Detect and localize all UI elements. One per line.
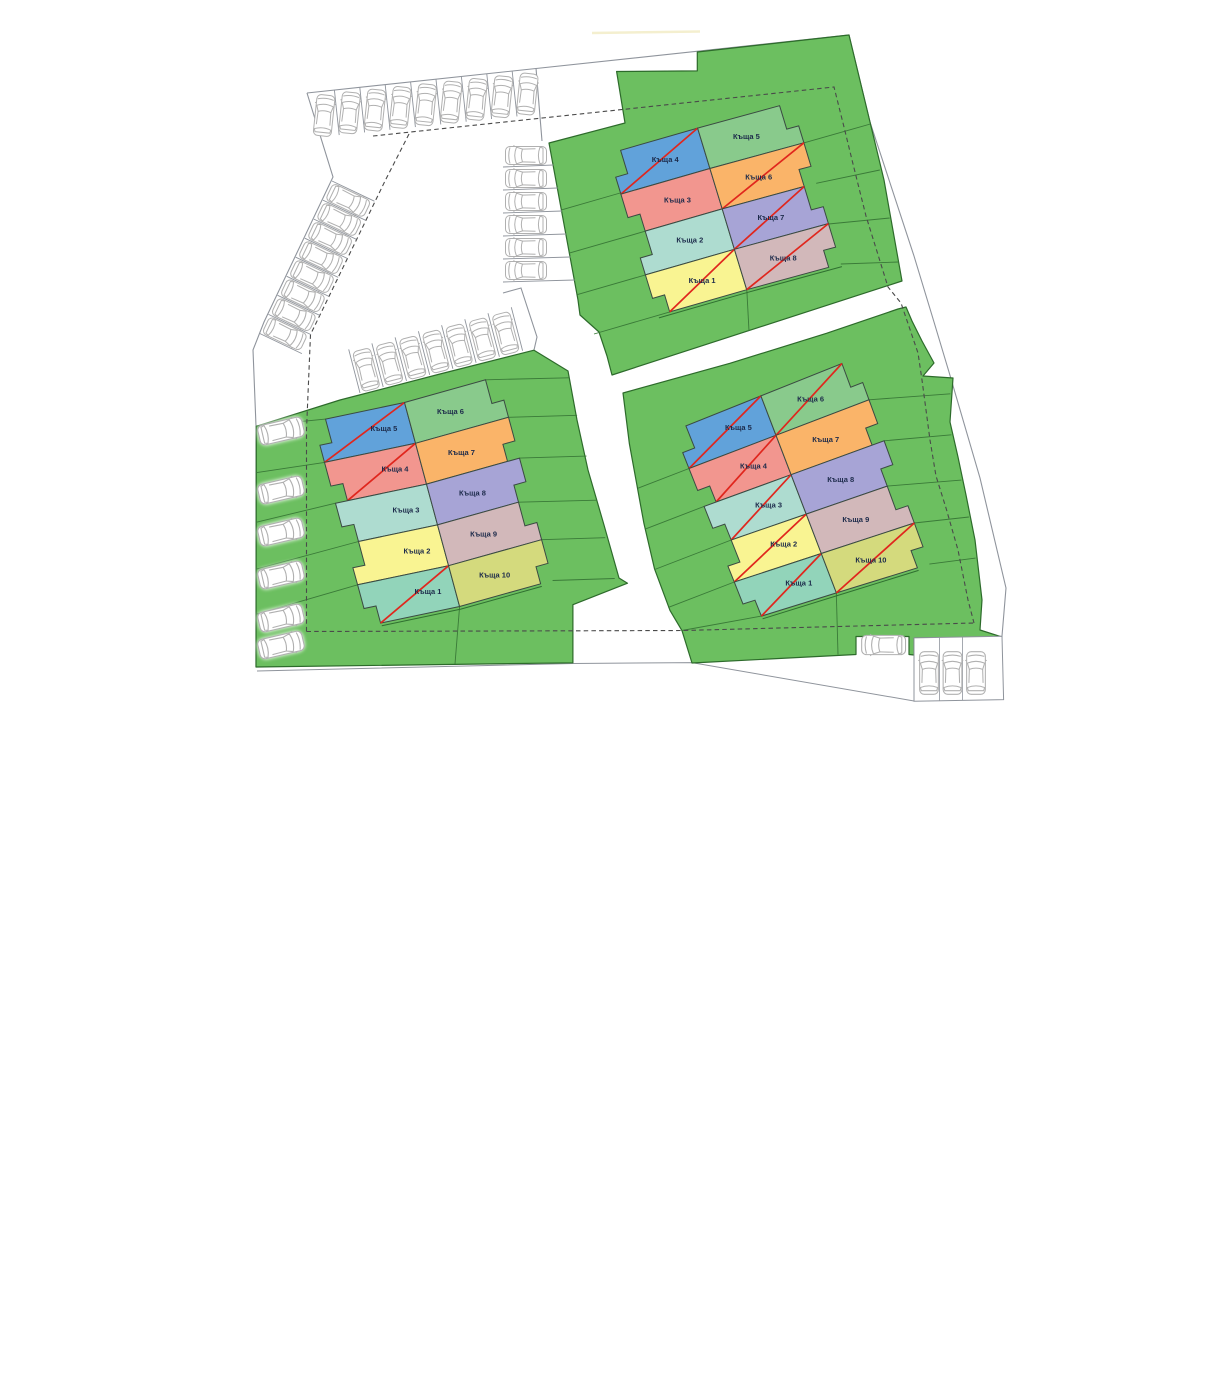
- svg-text:Къща 6: Къща 6: [797, 395, 824, 404]
- svg-text:Къща 7: Къща 7: [812, 435, 839, 444]
- svg-text:Къща 2: Къща 2: [404, 546, 431, 555]
- svg-text:Къща 1: Къща 1: [689, 276, 716, 285]
- svg-text:Къща 7: Къща 7: [757, 213, 784, 222]
- svg-text:Къща 2: Къща 2: [770, 539, 797, 548]
- svg-text:Къща 8: Къща 8: [459, 489, 486, 498]
- svg-text:Къща 5: Къща 5: [370, 424, 397, 433]
- svg-text:Къща 1: Къща 1: [785, 578, 812, 587]
- svg-text:Къща 1: Къща 1: [415, 587, 442, 596]
- svg-text:Къща 6: Къща 6: [745, 173, 772, 182]
- svg-text:Къща 4: Къща 4: [382, 465, 410, 474]
- svg-text:Къща 5: Къща 5: [725, 423, 752, 432]
- svg-text:Къща 10: Къща 10: [855, 555, 886, 564]
- svg-text:Къща 10: Къща 10: [479, 570, 510, 579]
- svg-text:Къща 6: Къща 6: [437, 407, 464, 416]
- svg-text:Къща 4: Къща 4: [740, 462, 768, 471]
- svg-text:Къща 2: Къща 2: [676, 236, 703, 245]
- svg-text:Къща 7: Къща 7: [448, 448, 475, 457]
- svg-text:Къща 8: Къща 8: [770, 253, 797, 262]
- svg-text:Къща 3: Къща 3: [664, 195, 691, 204]
- svg-text:Къща 9: Къща 9: [470, 530, 497, 539]
- svg-text:Къща 3: Къща 3: [393, 506, 420, 515]
- svg-text:Къща 5: Къща 5: [733, 132, 760, 141]
- svg-text:Къща 4: Къща 4: [652, 155, 680, 164]
- svg-text:Къща 3: Къща 3: [755, 501, 782, 510]
- svg-text:Къща 8: Къща 8: [827, 475, 854, 484]
- svg-text:Къща 9: Къща 9: [842, 515, 869, 524]
